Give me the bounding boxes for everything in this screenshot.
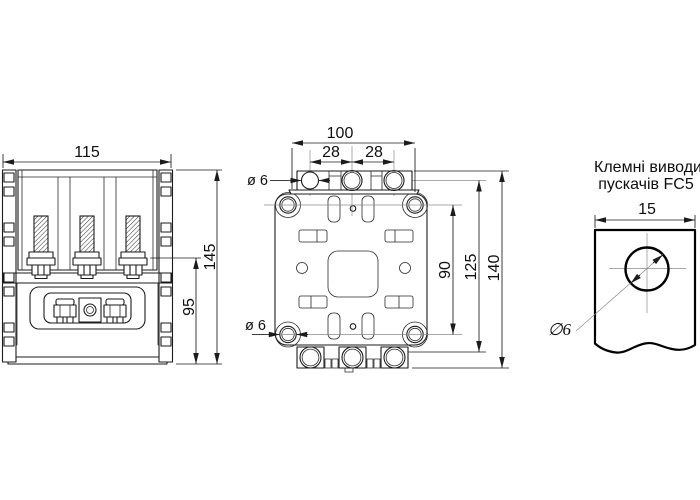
starter-dimension-drawing: 115 145 95 [0, 0, 700, 500]
dim-front-height-total: 145 [176, 170, 222, 364]
mounting-view: 100 28 28 ø 6 ø 6 90 125 [245, 125, 509, 372]
base-plate [8, 357, 167, 364]
top-terminal-block [289, 171, 419, 195]
top-block-body [297, 171, 412, 190]
dim-text-28-left: 28 [322, 144, 340, 161]
caption-line-2: пускачів FC5 [598, 176, 694, 193]
dim-text-125: 125 [463, 254, 480, 281]
din-rail-right [159, 170, 173, 362]
dim-text-115: 115 [74, 144, 100, 161]
dim-plate-width: 15 [595, 201, 695, 228]
terminal-detail-view: Клемні виводи пускачів FC5 15 ∅6 [548, 159, 700, 353]
center-contact-block [79, 298, 101, 322]
front-view: 115 145 95 [3, 144, 223, 364]
bottom-cell-right [381, 347, 408, 368]
technical-drawing-page: 115 145 95 [0, 0, 700, 500]
bottom-cell-left [297, 347, 324, 368]
bottom-terminal-block [297, 347, 408, 372]
caption-line-1: Клемні виводи [594, 159, 700, 176]
dim-text-hole-top: ø 6 [247, 173, 268, 189]
dim-text-140: 140 [486, 255, 503, 282]
dim-text-145: 145 [202, 244, 219, 271]
dim-text-15: 15 [638, 201, 656, 218]
coil-terminal-panel [30, 287, 145, 329]
dim-front-width: 115 [3, 144, 171, 168]
dim-text-90: 90 [437, 261, 454, 279]
dim-text-28-right: 28 [365, 144, 383, 161]
dim-text-95: 95 [181, 298, 198, 316]
dim-hole-span: 90 [437, 205, 454, 335]
dim-text-hole-bottom: ø 6 [245, 318, 266, 334]
dim-text-100: 100 [327, 125, 354, 142]
mounting-plate [275, 194, 427, 345]
dim-text-hole-dia: ∅6 [548, 320, 572, 339]
din-rail-left [3, 170, 17, 362]
bottom-cell-mid [339, 347, 366, 368]
